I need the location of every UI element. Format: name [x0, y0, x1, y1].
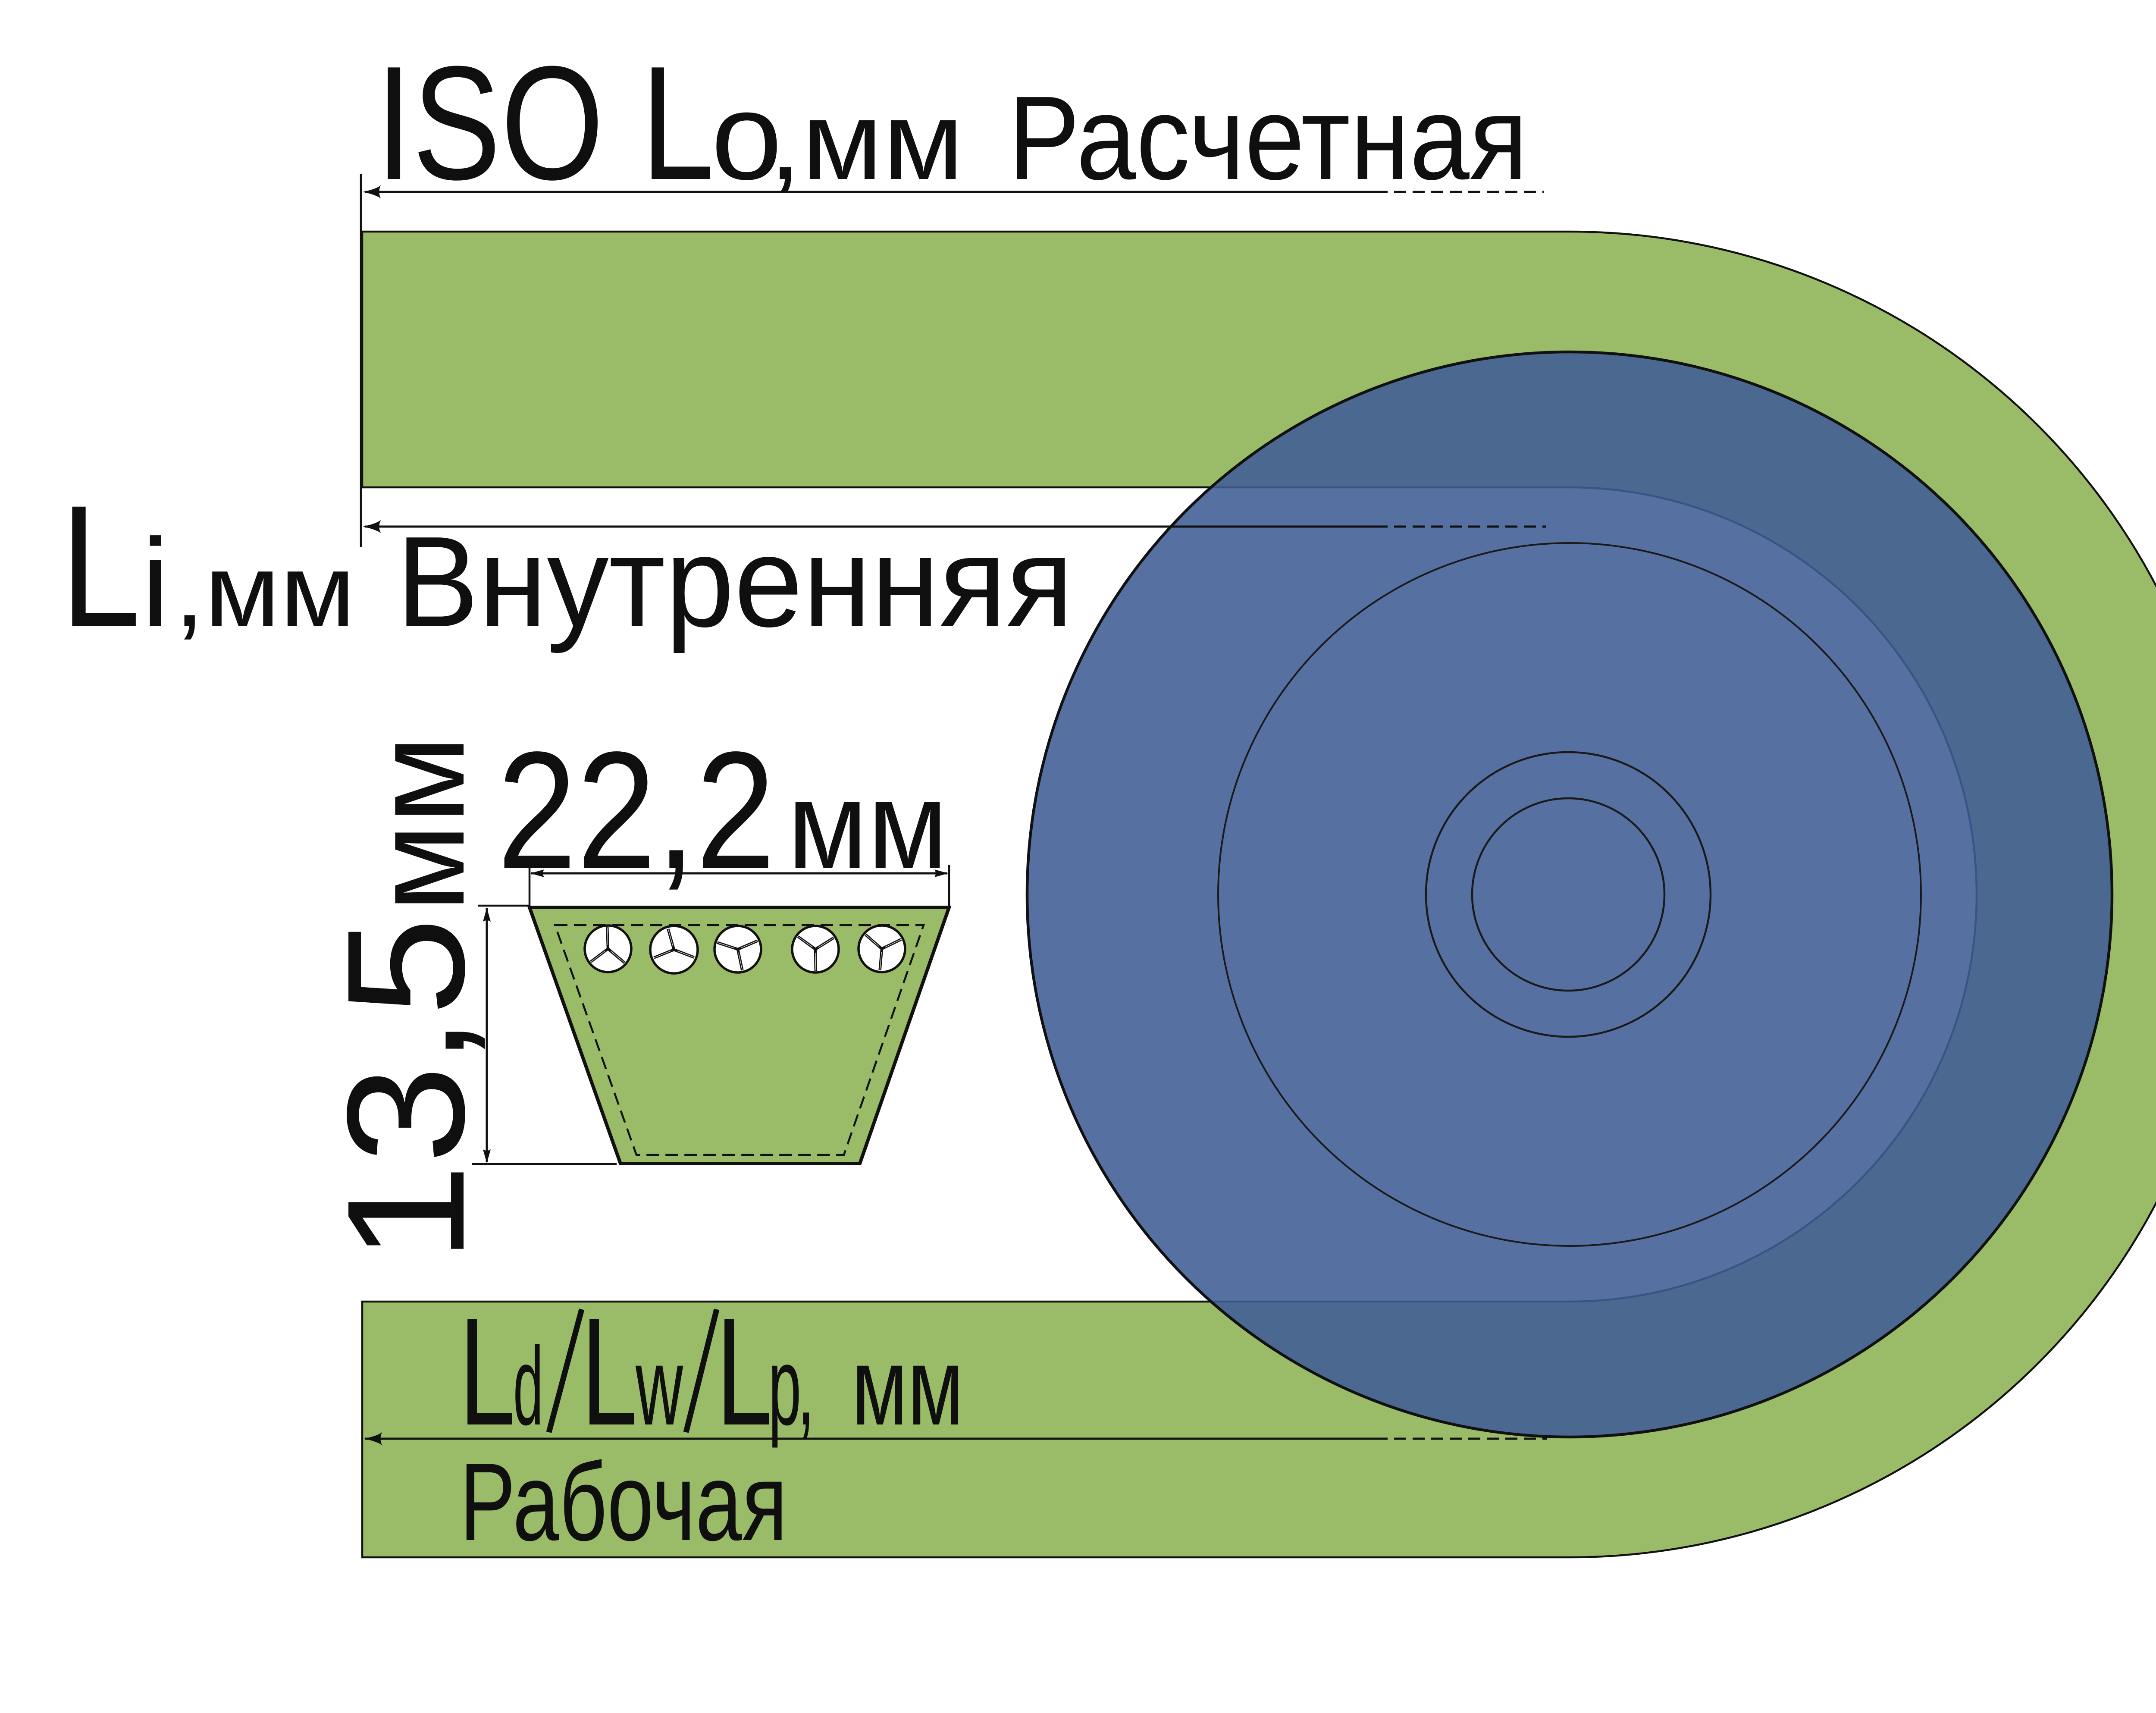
svg-text:L: L — [459, 1286, 515, 1457]
svg-text:,: , — [797, 1324, 815, 1448]
svg-text:ISO L: ISO L — [376, 32, 714, 213]
svg-text:22,2: 22,2 — [497, 717, 775, 904]
svg-text:,мм: ,мм — [769, 78, 964, 203]
svg-text:мм: мм — [787, 755, 948, 895]
svg-text:мм: мм — [346, 735, 491, 912]
svg-text:w: w — [635, 1324, 684, 1448]
svg-text:Расчетная: Расчетная — [1008, 72, 1528, 204]
svg-text:Внутренняя: Внутренняя — [396, 510, 1073, 654]
svg-text:L: L — [60, 469, 141, 663]
svg-text:Рабочая: Рабочая — [460, 1440, 787, 1564]
svg-text:i: i — [141, 513, 169, 653]
svg-text:p: p — [768, 1324, 801, 1449]
svg-text:13,5: 13,5 — [313, 917, 499, 1262]
svg-text:L: L — [581, 1286, 637, 1457]
svg-text:L: L — [716, 1286, 772, 1457]
svg-text:,мм: ,мм — [174, 533, 355, 648]
svg-text:d: d — [513, 1324, 543, 1448]
svg-text:мм: мм — [852, 1324, 964, 1448]
